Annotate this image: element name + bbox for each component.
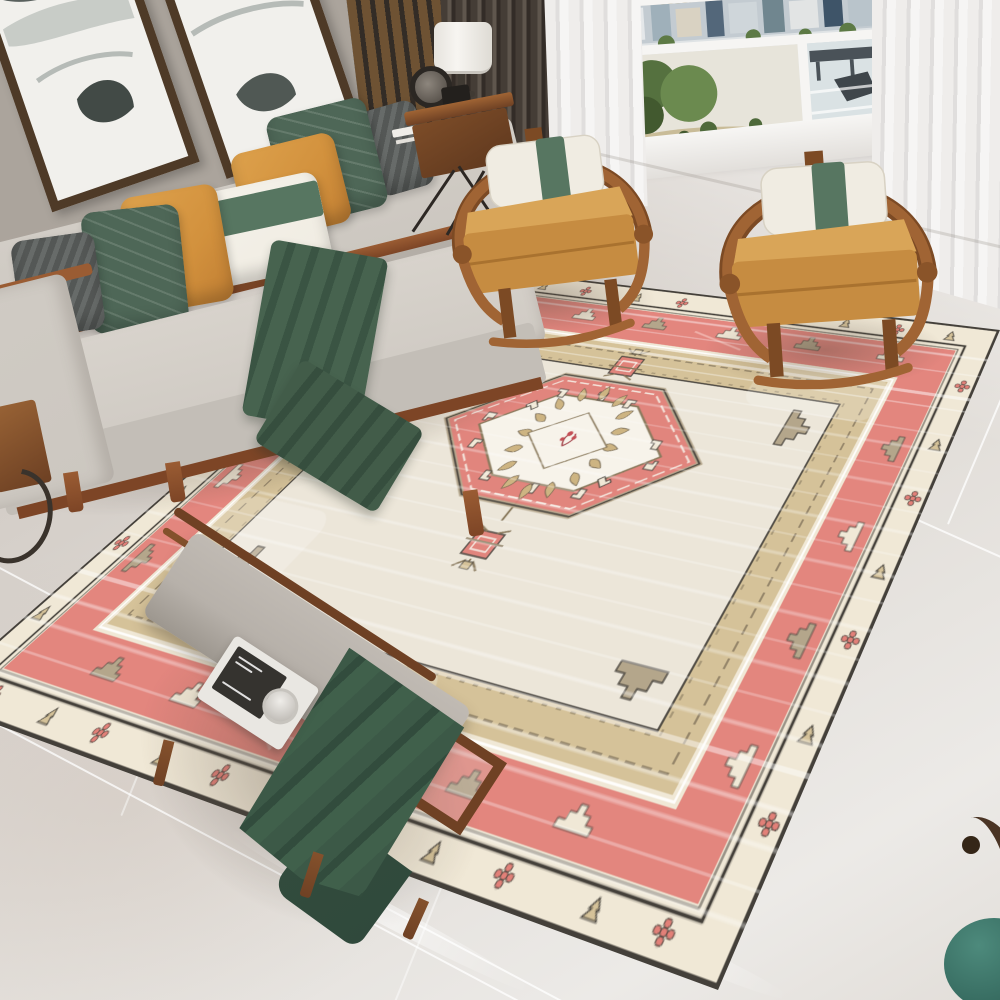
living-room-photo: [0, 0, 1000, 1000]
armchair-right: [693, 114, 950, 404]
dark-chair-knob: [962, 836, 980, 854]
bench-leg: [153, 739, 175, 786]
table-lamp-shade: [434, 22, 492, 74]
bench-leg: [402, 898, 429, 941]
bench: [80, 560, 540, 980]
armchair-left: [421, 88, 671, 366]
